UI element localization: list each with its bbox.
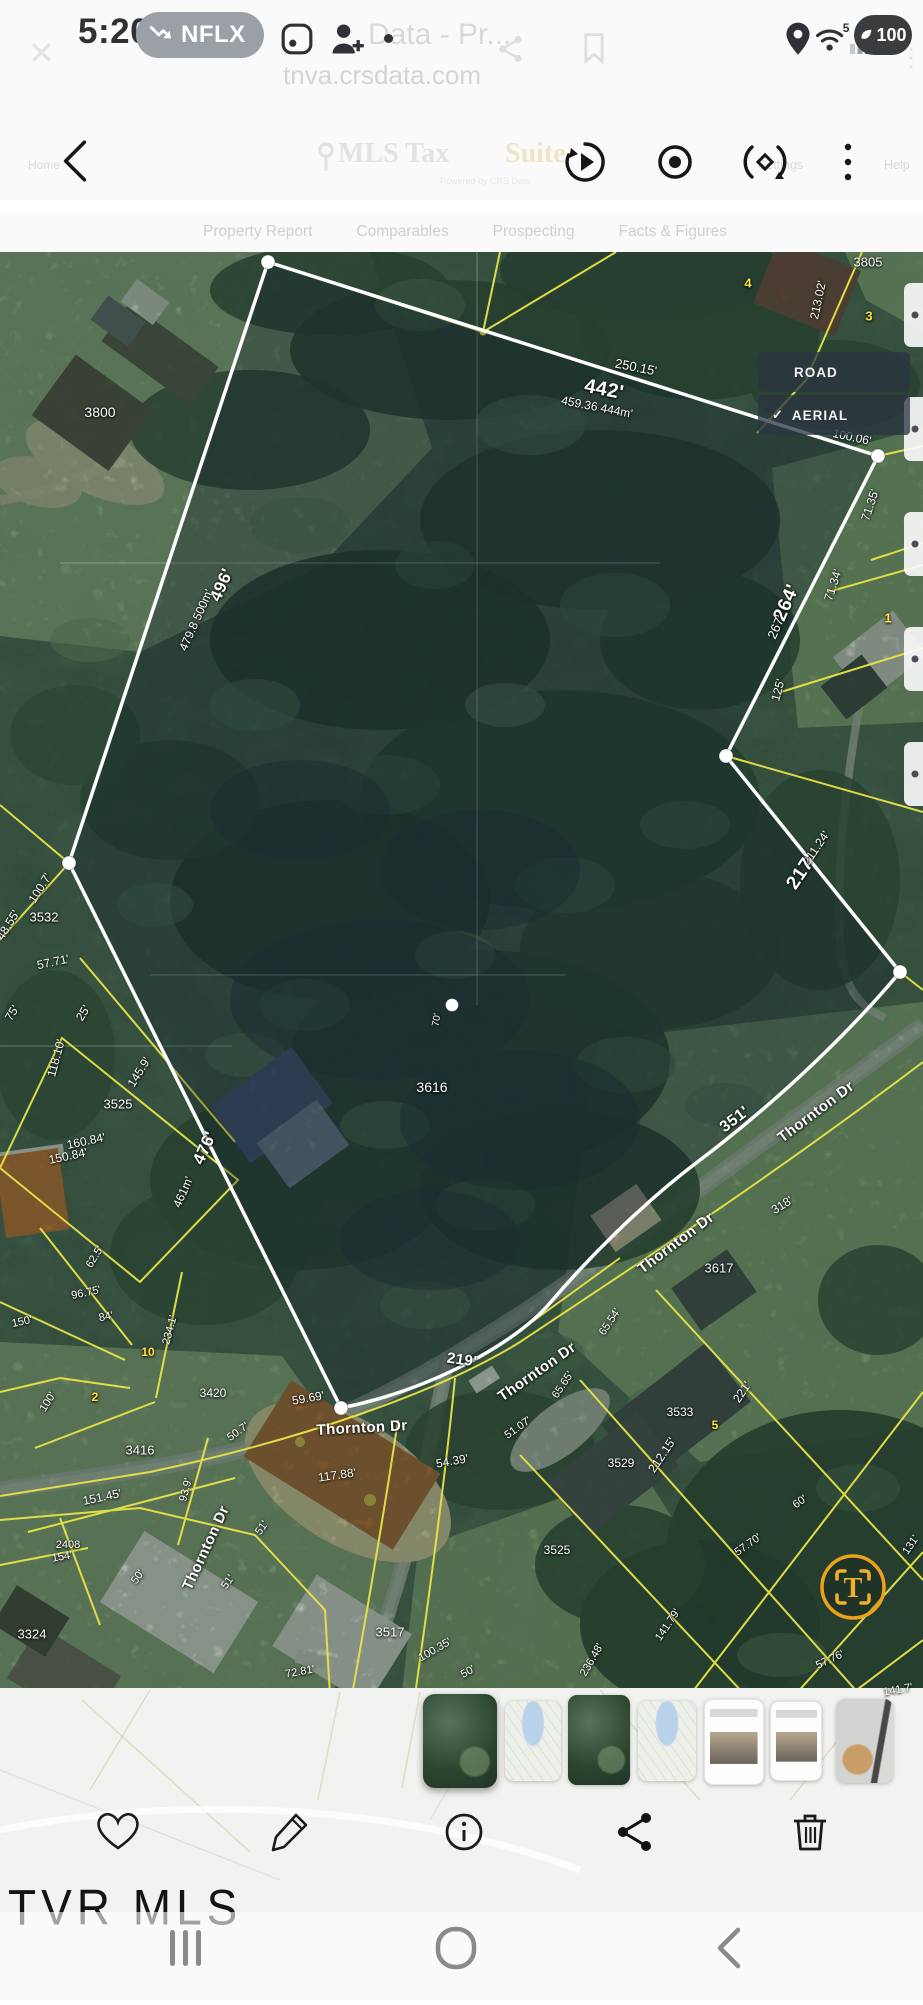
recents-button[interactable] bbox=[166, 1926, 206, 1970]
ghost-help-link: Help bbox=[884, 158, 910, 172]
status-bar: Data - Pr... tnva.crsdata.com ✕ ⋮ 5:20 N… bbox=[0, 0, 923, 100]
photo-thumbnail-7[interactable] bbox=[836, 1699, 893, 1783]
svg-text:5: 5 bbox=[843, 22, 850, 35]
svg-text:T: T bbox=[844, 1573, 863, 1604]
overflow-menu-button[interactable] bbox=[838, 138, 858, 186]
layer-option-aerial[interactable]: ✓ AERIAL bbox=[758, 395, 910, 435]
edit-button[interactable] bbox=[265, 1808, 313, 1856]
notification-dot-icon bbox=[384, 34, 393, 43]
notification-badge-nflx[interactable]: NFLX bbox=[136, 12, 264, 58]
aerial-map-canvas[interactable] bbox=[0, 252, 923, 1692]
photo-thumbnail-5[interactable] bbox=[704, 1699, 764, 1785]
photo-thumbnail-4[interactable] bbox=[638, 1701, 696, 1781]
screen-capture-icon bbox=[280, 22, 314, 56]
tab-facts-figures[interactable]: Facts & Figures bbox=[618, 223, 727, 241]
rotate-view-button[interactable] bbox=[741, 138, 789, 186]
share-button[interactable] bbox=[613, 1808, 661, 1856]
ghost-brand-mls-tax: MLS Tax bbox=[338, 138, 449, 170]
ghost-share-icon bbox=[498, 34, 524, 64]
back-button[interactable] bbox=[56, 136, 94, 186]
info-button[interactable] bbox=[440, 1808, 488, 1856]
tab-comparables[interactable]: Comparables bbox=[356, 223, 448, 241]
favorite-button[interactable] bbox=[94, 1808, 142, 1856]
battery-saver-leaf-icon bbox=[859, 28, 873, 42]
ghost-url: tnva.crsdata.com bbox=[283, 60, 481, 91]
report-tabs: Property ReportComparablesProspectingFac… bbox=[0, 212, 923, 252]
notification-label: NFLX bbox=[181, 21, 246, 49]
photo-thumbnail-3[interactable] bbox=[568, 1695, 630, 1785]
person-add-icon bbox=[328, 20, 366, 58]
photo-thumbnail-1[interactable] bbox=[423, 1694, 497, 1788]
ghost-pin-icon bbox=[316, 142, 336, 172]
action-bar bbox=[0, 1800, 923, 1870]
map-layer-control: ROAD ✓ AERIAL bbox=[758, 352, 910, 435]
tab-prospecting[interactable]: Prospecting bbox=[493, 223, 575, 241]
home-button[interactable] bbox=[433, 1924, 479, 1972]
ghost-close-icon: ✕ bbox=[28, 34, 55, 72]
redirect-arrow-icon bbox=[148, 22, 174, 48]
location-icon bbox=[782, 20, 814, 56]
app-toolbar: Home MLS Tax Suite Powered by CRS Data S… bbox=[0, 100, 923, 200]
tab-property-report[interactable]: Property Report bbox=[203, 223, 312, 241]
street-view-button[interactable] bbox=[561, 138, 609, 186]
check-icon: ✓ bbox=[758, 407, 784, 423]
android-navigation-bar bbox=[0, 1912, 923, 2000]
photo-thumbnail-6[interactable] bbox=[770, 1701, 822, 1781]
photo-thumbnail-2[interactable] bbox=[505, 1701, 561, 1781]
nav-back-button[interactable] bbox=[712, 1924, 746, 1972]
wifi-icon: 5 bbox=[814, 22, 850, 54]
extract-text-fab[interactable]: T bbox=[819, 1553, 887, 1621]
ghost-brand-suite: Suite bbox=[505, 138, 566, 170]
ghost-bookmark-icon bbox=[580, 32, 608, 64]
layer-option-road-label: ROAD bbox=[758, 365, 838, 380]
delete-button[interactable] bbox=[786, 1808, 834, 1856]
layer-option-aerial-label: AERIAL bbox=[784, 408, 848, 423]
battery-indicator: 100 bbox=[854, 15, 912, 55]
map-viewport[interactable] bbox=[0, 252, 923, 1692]
visibility-button[interactable] bbox=[651, 138, 699, 186]
ghost-powered-by: Powered by CRS Data bbox=[440, 176, 531, 186]
layer-option-road[interactable]: ROAD bbox=[758, 352, 910, 392]
